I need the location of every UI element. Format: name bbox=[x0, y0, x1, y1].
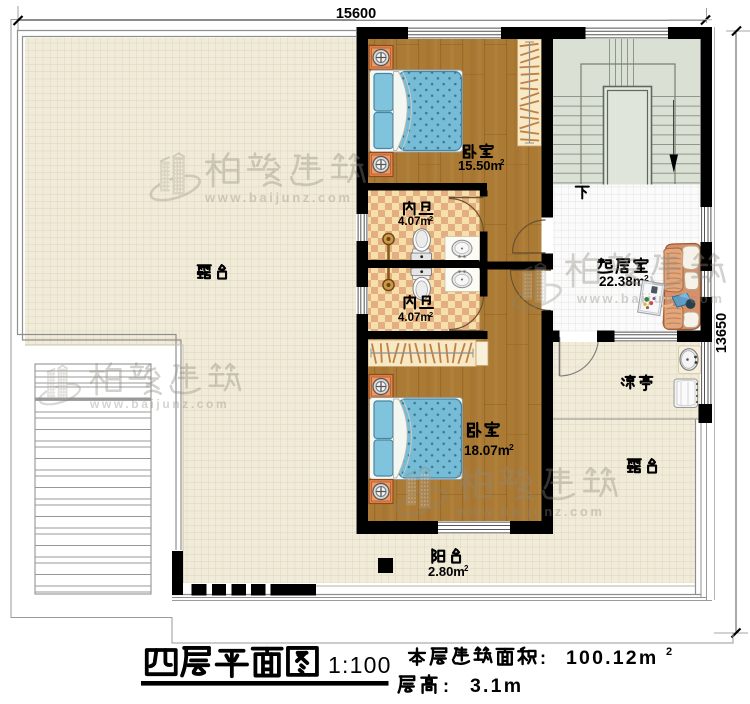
svg-text::: : bbox=[540, 648, 546, 668]
svg-text::: : bbox=[443, 676, 449, 696]
svg-text:4.07m: 4.07m bbox=[398, 216, 431, 228]
svg-text:www.baijunz.com: www.baijunz.com bbox=[204, 190, 353, 205]
svg-text:www.baijunz.com: www.baijunz.com bbox=[89, 397, 229, 411]
svg-text:4.07m: 4.07m bbox=[398, 312, 431, 324]
svg-text:22.38m: 22.38m bbox=[599, 274, 645, 289]
svg-text:15.50m: 15.50m bbox=[458, 158, 502, 173]
svg-text:15600: 15600 bbox=[336, 6, 376, 22]
svg-text:2: 2 bbox=[500, 158, 505, 167]
svg-text:18.07m: 18.07m bbox=[464, 443, 510, 458]
svg-text:2: 2 bbox=[429, 214, 433, 223]
svg-text:www.baijunz.com: www.baijunz.com bbox=[576, 291, 725, 306]
svg-text:2: 2 bbox=[429, 310, 433, 319]
svg-text:1:100: 1:100 bbox=[328, 652, 392, 678]
svg-text:2: 2 bbox=[509, 442, 514, 452]
svg-text:2: 2 bbox=[464, 564, 469, 573]
svg-text:2.80m: 2.80m bbox=[428, 564, 465, 579]
svg-text:www.baijunz.com: www.baijunz.com bbox=[456, 504, 605, 519]
svg-text:2: 2 bbox=[666, 646, 672, 658]
svg-text:3.1m: 3.1m bbox=[470, 675, 523, 697]
svg-text:13650: 13650 bbox=[714, 313, 730, 353]
svg-text:100.12m: 100.12m bbox=[566, 647, 658, 669]
